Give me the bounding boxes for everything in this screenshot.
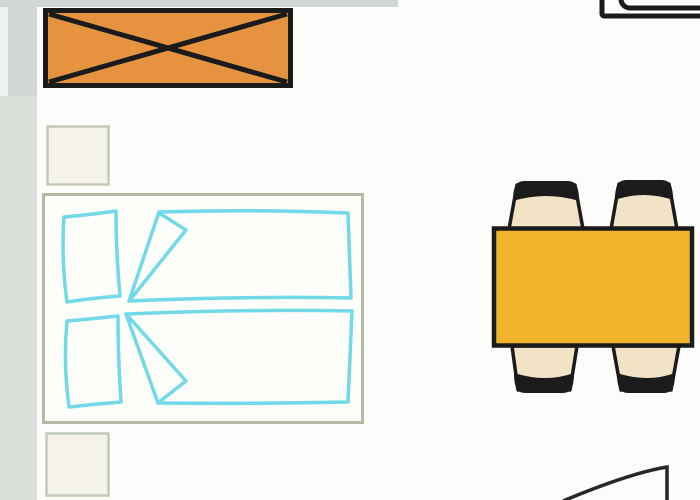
nightstand-top — [48, 127, 109, 185]
wall-top — [0, 0, 398, 7]
double-bed — [44, 195, 363, 423]
sink-basin — [621, 0, 700, 8]
wall-left-upper-segment — [8, 0, 37, 96]
dining-table — [494, 229, 692, 346]
wardrobe — [46, 11, 291, 86]
nightstand-bottom — [47, 434, 109, 496]
bed-frame — [44, 195, 363, 423]
wall-left-margin — [0, 0, 8, 96]
sink-unit — [602, 0, 700, 16]
floor-plan — [0, 0, 700, 500]
floor-plan-drawing — [0, 0, 700, 500]
